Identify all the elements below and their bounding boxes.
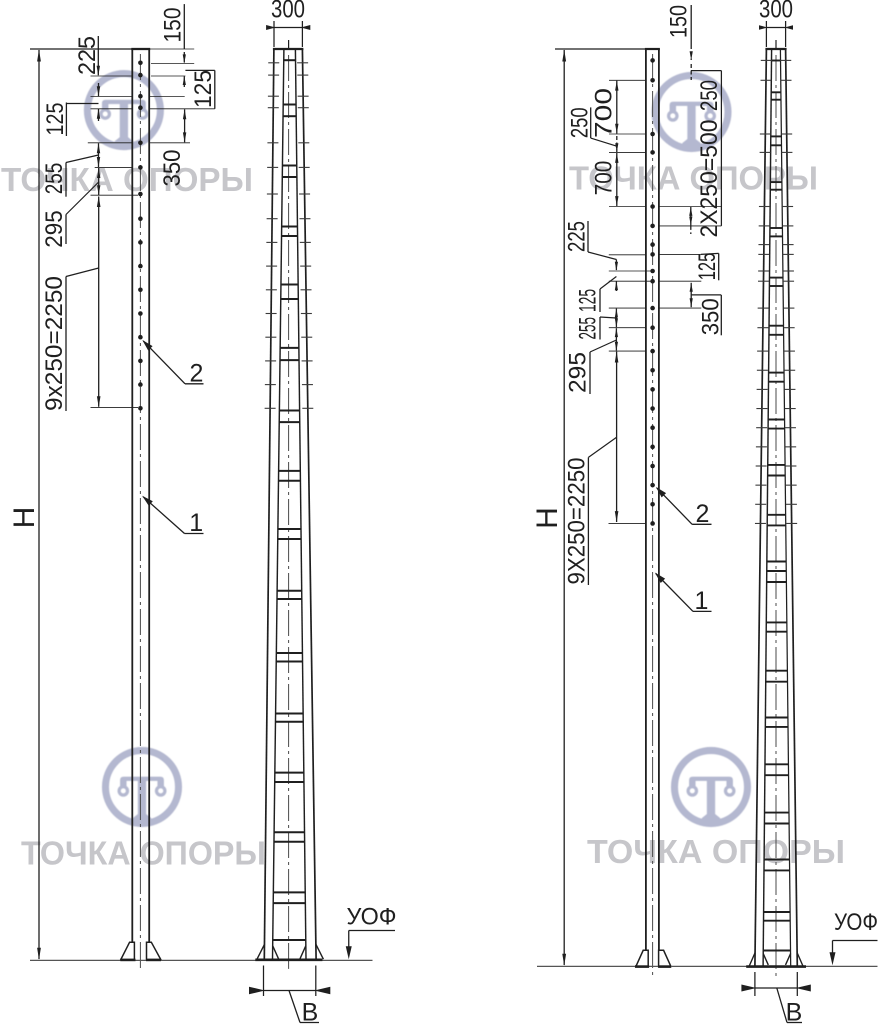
svg-text:295: 295 <box>41 210 68 248</box>
svg-text:700: 700 <box>591 88 618 138</box>
svg-text:250: 250 <box>567 107 594 138</box>
svg-text:125: 125 <box>694 253 721 281</box>
svg-text:1: 1 <box>695 587 709 615</box>
svg-text:В: В <box>786 999 803 1024</box>
svg-text:125: 125 <box>42 103 69 136</box>
svg-text:ТОЧКА ОПОРЫ: ТОЧКА ОПОРЫ <box>587 834 845 871</box>
svg-text:350: 350 <box>698 298 725 335</box>
svg-text:ТОЧКА ОПОРЫ: ТОЧКА ОПОРЫ <box>21 836 266 873</box>
svg-text:350: 350 <box>159 150 186 187</box>
svg-text:225: 225 <box>74 36 101 75</box>
svg-text:300: 300 <box>271 0 305 24</box>
svg-text:H: H <box>531 507 564 529</box>
svg-text:250: 250 <box>696 80 723 111</box>
svg-text:255: 255 <box>575 317 602 340</box>
svg-text:В: В <box>302 999 319 1024</box>
svg-text:УОФ: УОФ <box>834 909 878 936</box>
svg-text:150: 150 <box>666 5 693 38</box>
svg-text:9Х250=2250: 9Х250=2250 <box>564 458 591 585</box>
svg-text:1: 1 <box>189 509 203 537</box>
svg-text:225: 225 <box>564 221 591 252</box>
svg-text:2Х250=500: 2Х250=500 <box>696 120 723 238</box>
svg-text:300: 300 <box>759 0 793 24</box>
svg-text:125: 125 <box>575 289 602 312</box>
svg-text:125: 125 <box>190 70 217 108</box>
svg-text:2: 2 <box>190 360 204 388</box>
svg-text:700: 700 <box>591 161 618 196</box>
svg-text:2: 2 <box>696 500 710 528</box>
svg-text:255: 255 <box>41 163 68 195</box>
svg-text:H: H <box>8 507 41 529</box>
svg-text:150: 150 <box>160 8 187 43</box>
svg-text:9х250=2250: 9х250=2250 <box>41 276 68 411</box>
svg-text:295: 295 <box>565 352 592 393</box>
svg-text:УОФ: УОФ <box>347 904 397 931</box>
